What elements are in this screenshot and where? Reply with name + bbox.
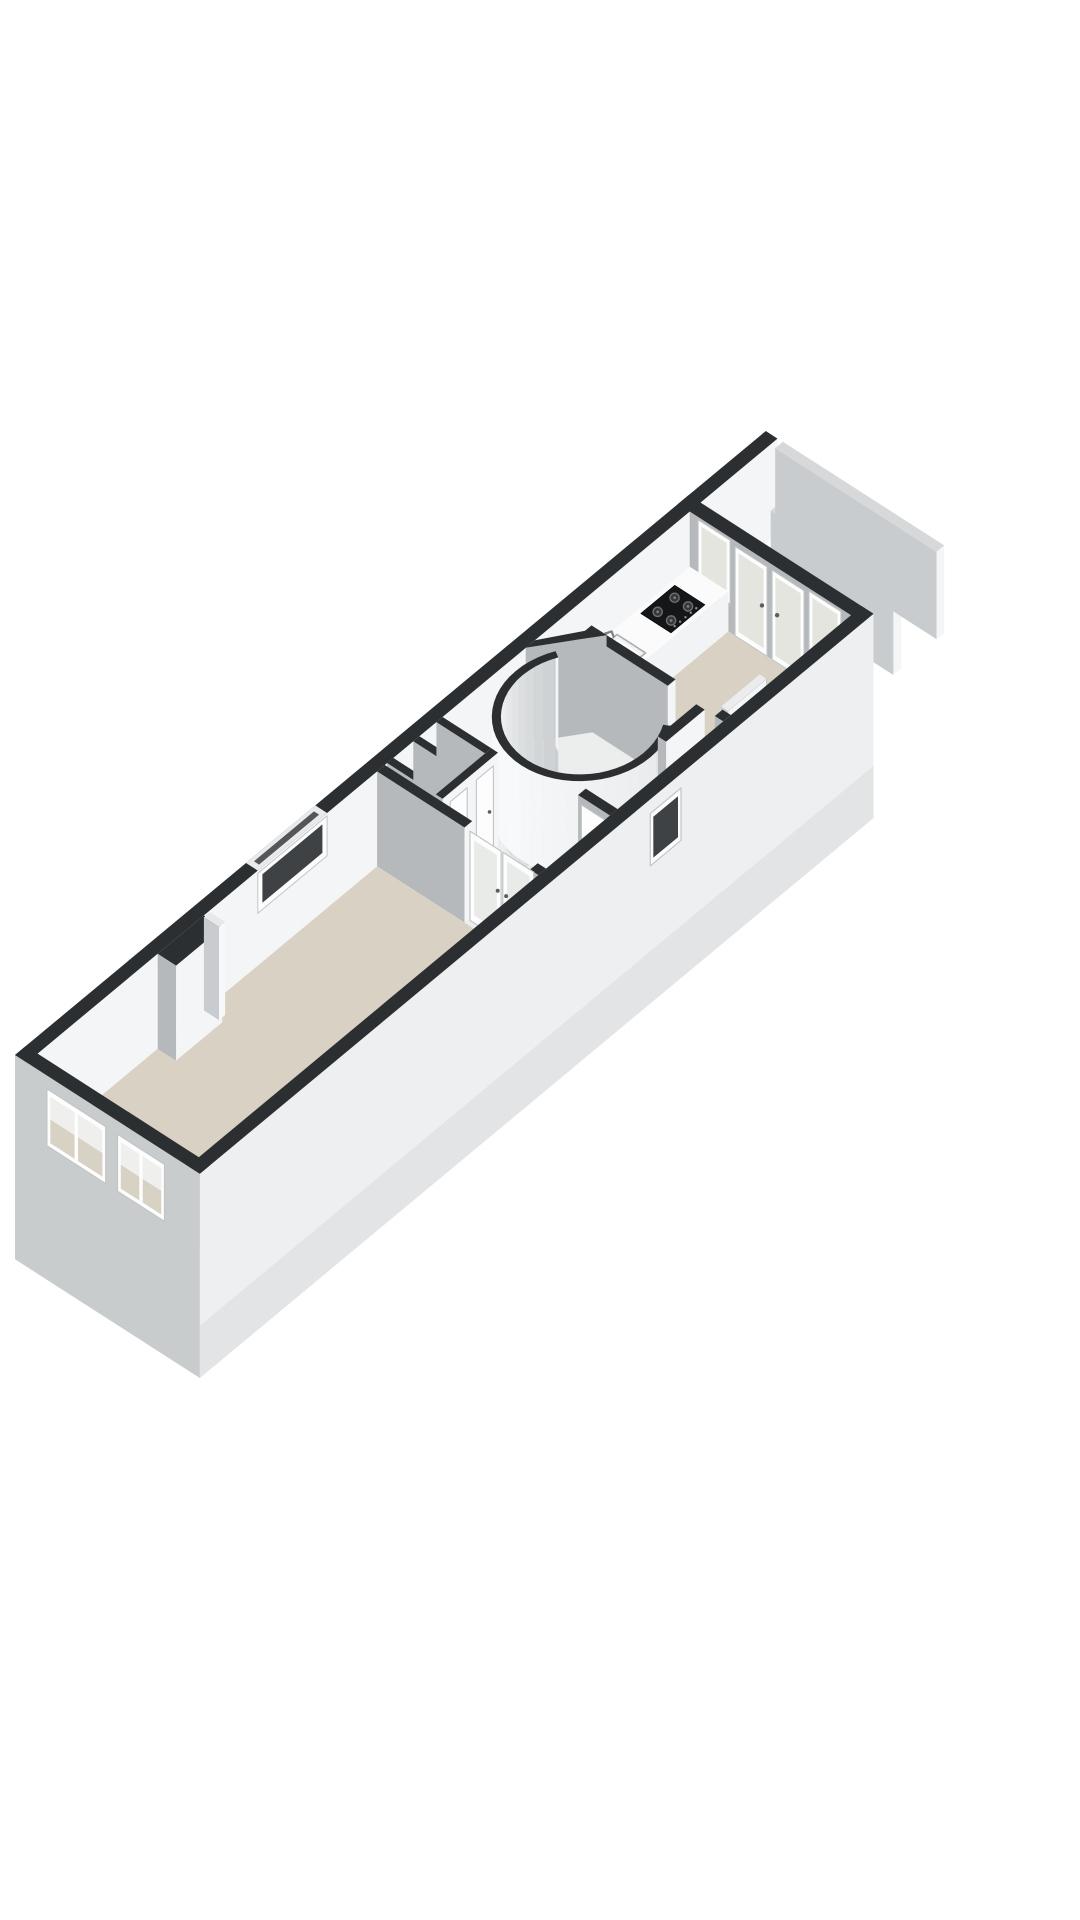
floorplan-canvas [0, 0, 1080, 1920]
floorplan-3d-render [0, 0, 1080, 1920]
